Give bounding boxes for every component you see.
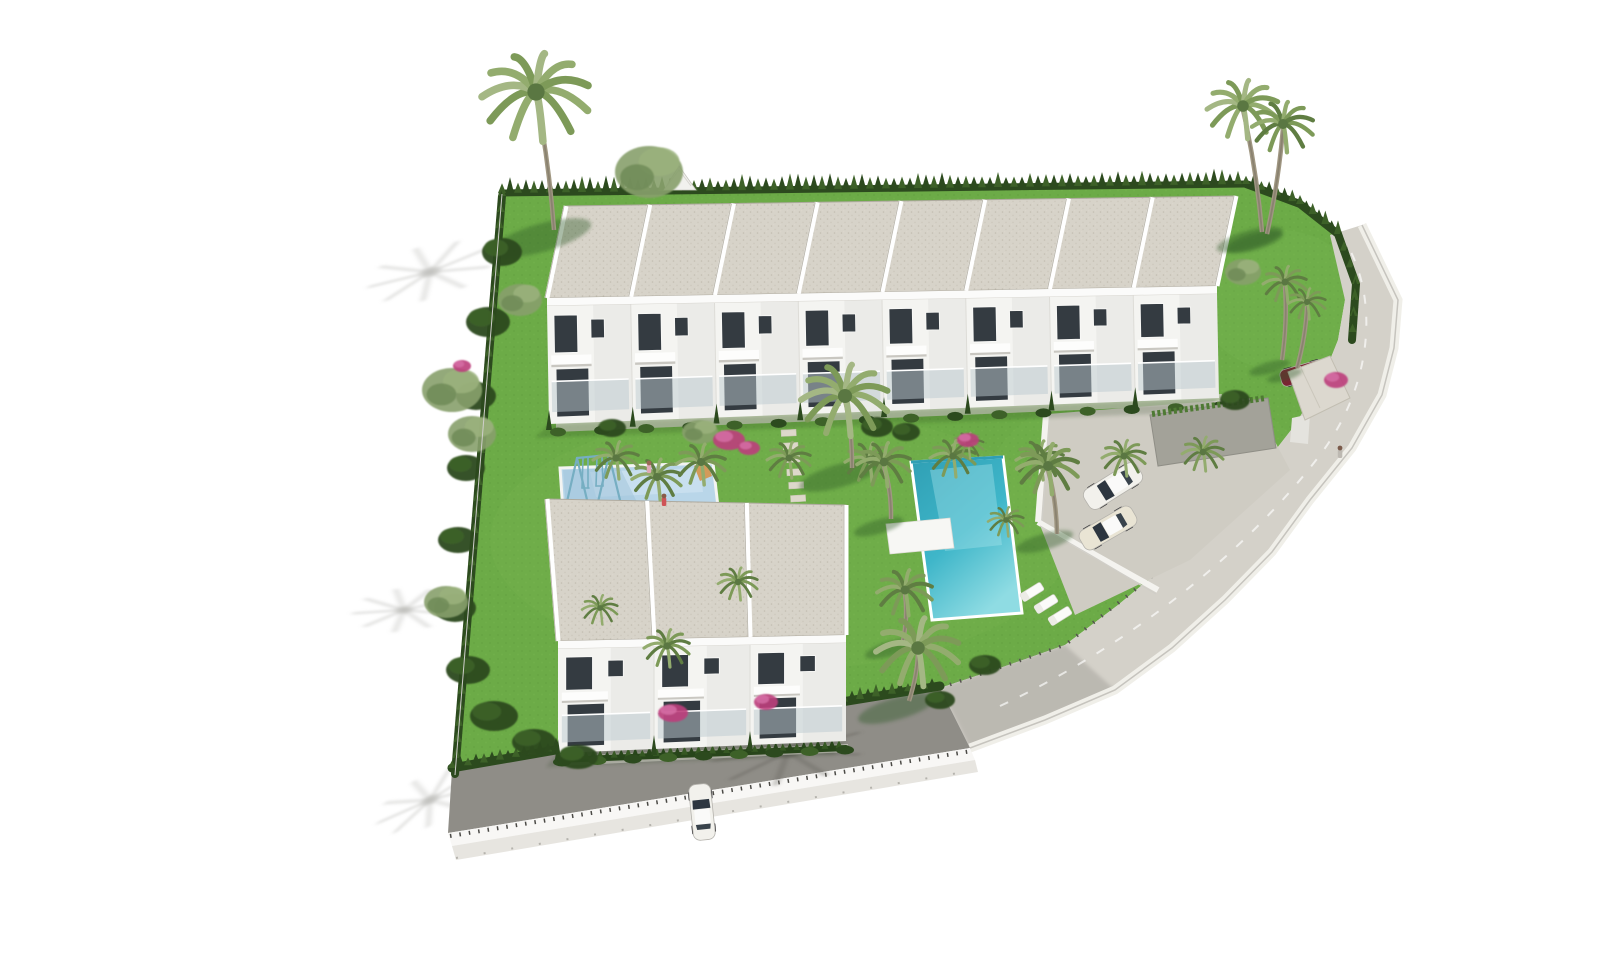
glass-balustrade bbox=[1138, 361, 1216, 391]
upper-window bbox=[1056, 305, 1080, 340]
townhouse-unit bbox=[555, 647, 654, 759]
shrub bbox=[1220, 390, 1250, 410]
shrub bbox=[969, 655, 1001, 675]
leafy-tree bbox=[1225, 259, 1261, 285]
person-figure bbox=[1338, 446, 1343, 458]
shrub bbox=[438, 527, 478, 553]
glass-balustrade bbox=[635, 376, 713, 409]
balcony-canopy bbox=[1054, 341, 1094, 351]
leafy-tree bbox=[615, 146, 683, 198]
small-window bbox=[1093, 309, 1107, 326]
small-window bbox=[608, 660, 623, 677]
shrub bbox=[892, 423, 920, 441]
balcony-canopy bbox=[551, 354, 591, 365]
site-plan-render bbox=[0, 0, 1600, 960]
townhouse-unit bbox=[714, 302, 801, 424]
roof-deck bbox=[545, 499, 846, 641]
person-figure bbox=[647, 461, 652, 473]
balcony-canopy bbox=[970, 343, 1010, 353]
upper-window bbox=[1140, 303, 1164, 337]
shrub bbox=[466, 307, 510, 337]
small-window bbox=[1177, 307, 1191, 324]
balcony-canopy bbox=[886, 345, 926, 355]
small-window bbox=[591, 319, 605, 338]
balcony-canopy bbox=[719, 350, 759, 360]
balcony-canopy bbox=[1137, 339, 1177, 349]
bougainvillea bbox=[738, 441, 760, 455]
bottom-townhouse-block bbox=[545, 499, 846, 759]
bougainvillea bbox=[754, 694, 778, 710]
upper-window bbox=[805, 310, 829, 346]
shrub bbox=[446, 656, 490, 684]
balcony-canopy bbox=[658, 688, 704, 698]
person-figure bbox=[662, 494, 667, 506]
bougainvillea bbox=[957, 433, 979, 447]
shrub bbox=[598, 419, 626, 437]
townhouse-unit bbox=[630, 303, 717, 427]
shrub bbox=[512, 729, 556, 755]
leafy-tree bbox=[498, 284, 542, 316]
small-window bbox=[675, 317, 689, 336]
roof-panel bbox=[746, 503, 846, 637]
townhouse-unit bbox=[965, 297, 1052, 414]
glass-balustrade bbox=[719, 374, 797, 406]
balcony-canopy bbox=[635, 352, 675, 362]
upper-window bbox=[638, 313, 662, 351]
glass-balustrade bbox=[887, 369, 965, 400]
leafy-tree bbox=[682, 420, 718, 444]
townhouse-unit bbox=[1132, 294, 1219, 407]
small-window bbox=[926, 312, 940, 330]
small-window bbox=[842, 314, 856, 332]
leafy-tree bbox=[422, 368, 482, 412]
top-townhouse-row bbox=[545, 196, 1236, 430]
townhouse-unit bbox=[1049, 296, 1136, 411]
glass-balustrade bbox=[1054, 363, 1132, 393]
roof-deck bbox=[545, 196, 1236, 298]
leafy-tree bbox=[448, 416, 496, 452]
balcony-canopy bbox=[562, 691, 608, 701]
small-window bbox=[1010, 310, 1024, 328]
glass-balustrade bbox=[552, 379, 630, 412]
upper-window bbox=[758, 652, 785, 685]
bougainvillea bbox=[453, 360, 471, 372]
townhouse-unit bbox=[881, 299, 968, 418]
stepping-stone bbox=[781, 429, 796, 436]
shrub bbox=[558, 745, 598, 769]
small-window bbox=[758, 316, 772, 334]
upper-window bbox=[889, 308, 913, 344]
glass-balustrade bbox=[562, 712, 650, 742]
bougainvillea bbox=[1324, 372, 1348, 388]
upper-window bbox=[721, 312, 745, 349]
townhouse-unit bbox=[546, 305, 633, 431]
shrub bbox=[470, 701, 518, 731]
facades bbox=[555, 635, 846, 759]
small-window bbox=[800, 655, 815, 671]
upper-window bbox=[554, 315, 578, 353]
small-window bbox=[704, 658, 719, 675]
glass-balustrade bbox=[970, 366, 1048, 397]
upper-window bbox=[973, 307, 997, 342]
roof-panel bbox=[547, 499, 654, 641]
stepping-stone bbox=[790, 495, 805, 502]
balcony-canopy bbox=[802, 348, 842, 358]
shrub bbox=[925, 691, 955, 709]
bougainvillea bbox=[658, 704, 688, 722]
glass-balustrade bbox=[754, 706, 842, 735]
shrub bbox=[482, 238, 522, 266]
leafy-tree bbox=[424, 586, 468, 618]
balcony-canopy bbox=[754, 686, 800, 695]
townhouse-unit bbox=[651, 645, 750, 755]
roof-panel bbox=[647, 501, 750, 639]
architectural-render-canvas bbox=[0, 0, 1600, 960]
upper-window bbox=[566, 657, 593, 691]
upper-window bbox=[662, 654, 689, 687]
